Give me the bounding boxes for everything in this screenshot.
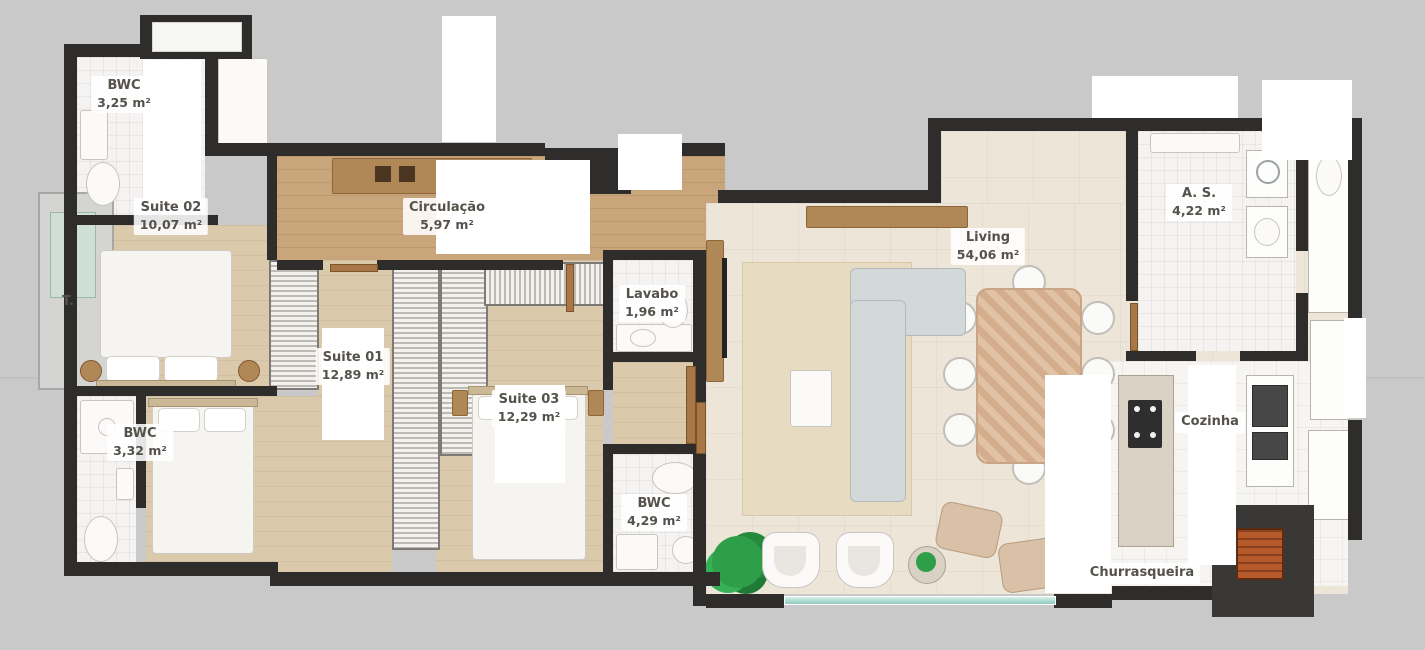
laundry-shelf: [1150, 133, 1240, 153]
burner: [1134, 406, 1140, 412]
oven: [1252, 385, 1288, 427]
room-area: 4,29 m²: [627, 513, 681, 529]
wall: [267, 156, 277, 260]
bed-suite-02: [100, 250, 232, 358]
burner: [1134, 432, 1140, 438]
lavabo-basin: [630, 329, 656, 347]
room-name: Suite 03: [498, 392, 560, 409]
white-patch: [618, 134, 682, 190]
room-label-lavabo: Lavabo 1,96 m²: [619, 285, 685, 322]
toilet: [86, 162, 120, 206]
room-name: BWC: [627, 496, 681, 513]
pillow: [204, 408, 246, 432]
door-hall-suite03: [686, 366, 696, 444]
room-area: 12,89 m²: [322, 367, 384, 383]
wall: [77, 386, 277, 396]
washer-door: [1256, 160, 1280, 184]
door-suite-03: [566, 264, 574, 312]
wall: [1126, 131, 1138, 301]
headboard: [148, 398, 258, 407]
bathroom-sink: [116, 468, 134, 500]
room-area: 12,29 m²: [498, 409, 560, 425]
nightstand-lamp: [238, 360, 260, 382]
room-label-suite-02: Suite 02 10,07 m²: [134, 198, 208, 235]
microwave: [1252, 432, 1288, 460]
room-area: 10,07 m²: [140, 217, 202, 233]
room-label-cozinha: Cozinha: [1175, 412, 1245, 433]
wall: [377, 260, 563, 270]
door-entry: [696, 402, 706, 454]
wall: [718, 190, 940, 203]
room-label-churrasqueira: Churrasqueira: [1084, 563, 1200, 584]
room-label-bwc-middle: BWC 4,29 m²: [621, 494, 687, 531]
plant-small: [916, 552, 936, 572]
coffee-table: [790, 370, 832, 427]
shower-box: [616, 534, 658, 570]
room-label-circulacao: Circulação 5,97 m²: [403, 198, 491, 235]
bbq-grill: [1236, 528, 1284, 580]
sideboard-decor: [375, 166, 391, 182]
room-area: 4,22 m²: [1172, 203, 1226, 219]
nightstand: [452, 390, 468, 416]
wall: [693, 452, 706, 606]
sofa: [850, 300, 906, 502]
kitchen-counter: [1308, 430, 1350, 520]
pillow: [106, 356, 160, 382]
room-name: A. S.: [1172, 186, 1226, 203]
wall: [277, 260, 323, 270]
white-patch: [1344, 318, 1366, 418]
wall: [1348, 420, 1362, 540]
wall: [928, 118, 1308, 131]
wall: [1240, 351, 1308, 361]
room-name: Cozinha: [1181, 414, 1239, 431]
wall: [1054, 594, 1112, 608]
toilet: [84, 516, 118, 562]
wall: [603, 250, 613, 390]
balcony-glass-railing: [784, 596, 1056, 605]
wall: [205, 143, 545, 156]
white-patch: [1262, 80, 1352, 160]
room-name: Lavabo: [625, 287, 679, 304]
toilet: [652, 462, 698, 494]
room-label-bwc-top: BWC 3,25 m²: [91, 76, 157, 113]
wall: [603, 444, 613, 586]
room-name: Circulação: [409, 200, 485, 217]
wall: [1126, 351, 1196, 361]
room-name: Living: [957, 230, 1019, 247]
floor-hall-suite03: [613, 362, 693, 444]
white-patch: [1045, 375, 1111, 593]
white-patch: [442, 16, 496, 142]
tank-basin: [1254, 218, 1280, 246]
nightstand: [588, 390, 604, 416]
room-name: BWC: [113, 426, 167, 443]
shaft-niche: [152, 22, 242, 52]
room-name: Churrasqueira: [1090, 565, 1194, 582]
room-label-suite-03: Suite 03 12,29 m²: [492, 390, 566, 427]
wall: [205, 44, 218, 156]
wardrobe-suite-01: [392, 262, 440, 550]
dining-chair: [1081, 301, 1115, 335]
room-area: 3,25 m²: [97, 95, 151, 111]
room-label-elevator: T.: [56, 292, 80, 313]
bathroom-sink: [80, 110, 108, 160]
sideboard-decor: [399, 166, 415, 182]
room-name: T.: [62, 294, 74, 311]
dining-chair: [943, 413, 977, 447]
floor-hall-top: [941, 131, 1126, 203]
wall: [64, 562, 278, 576]
door-suite-01: [330, 264, 378, 272]
wall: [270, 572, 720, 586]
wardrobe-suite-02: [269, 260, 319, 390]
tv: [722, 258, 727, 358]
room-label-area-servico: A. S. 4,22 m²: [1166, 184, 1232, 221]
room-name: BWC: [97, 78, 151, 95]
room-name: Suite 02: [140, 200, 202, 217]
room-area: 5,97 m²: [409, 217, 485, 233]
room-area: 1,96 m²: [625, 304, 679, 320]
door-area-servico: [1130, 303, 1138, 351]
floor-plan: BWC 3,25 m² Suite 02 10,07 m² Circulação…: [0, 0, 1425, 650]
nightstand-lamp: [80, 360, 102, 382]
room-label-suite-01: Suite 01 12,89 m²: [316, 348, 390, 385]
closet-top: [218, 58, 268, 146]
room-area: 3,32 m²: [113, 443, 167, 459]
room-label-living: Living 54,06 m²: [951, 228, 1025, 265]
wall: [1112, 586, 1212, 600]
room-area: 54,06 m²: [957, 247, 1019, 263]
burner: [1150, 406, 1156, 412]
cooktop: [1128, 400, 1162, 448]
pillow: [164, 356, 218, 382]
burner: [1150, 432, 1156, 438]
room-label-bwc-left: BWC 3,32 m²: [107, 424, 173, 461]
white-patch: [1188, 365, 1236, 565]
wall: [706, 594, 784, 608]
console-table: [806, 206, 968, 228]
room-name: Suite 01: [322, 350, 384, 367]
white-patch: [1092, 76, 1238, 118]
wall: [603, 250, 703, 260]
wall: [603, 444, 703, 454]
dining-chair: [943, 357, 977, 391]
wall: [603, 352, 703, 362]
kitchen-sink: [1316, 156, 1342, 196]
